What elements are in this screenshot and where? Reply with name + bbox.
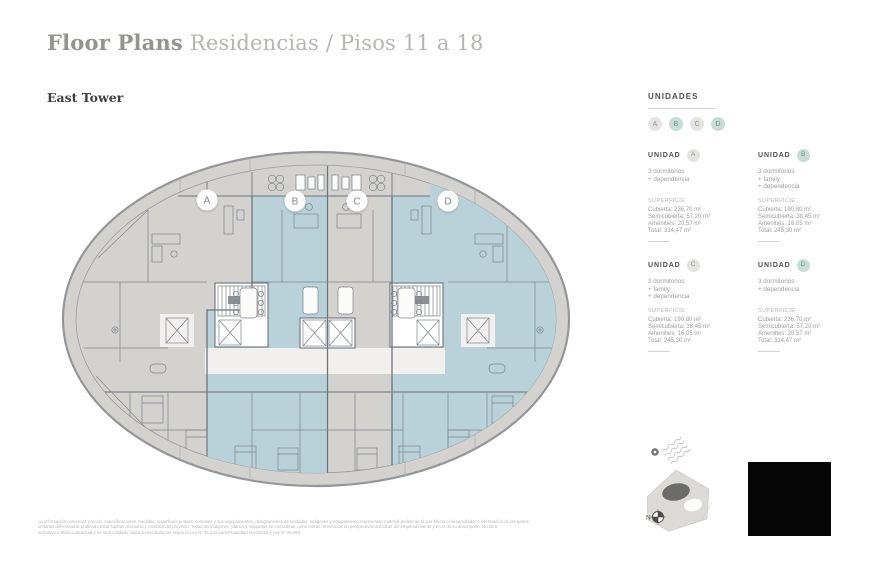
unit-badge-b: B bbox=[797, 149, 810, 162]
unit-card-header: UNIDAD C bbox=[648, 258, 752, 272]
unit-badge-a: A bbox=[687, 149, 700, 162]
legend-badge-b: B bbox=[669, 117, 683, 131]
water-waves-icon bbox=[661, 436, 690, 464]
legend-badge-row: A B C D bbox=[648, 117, 768, 131]
logo-placeholder bbox=[748, 462, 831, 536]
superficie-label: SUPERFICIE bbox=[648, 198, 752, 204]
unit-marker-d: D bbox=[438, 191, 459, 212]
unit-metrics: Cubierta: 190,80 m² Semicubierta: 38,45 … bbox=[758, 207, 862, 235]
dining-c bbox=[338, 287, 353, 314]
legend-divider bbox=[648, 108, 716, 109]
unit-metrics: Cubierta: 236,70 m² Semicubierta: 57,20 … bbox=[758, 317, 862, 345]
legend-badge-d: D bbox=[711, 117, 725, 131]
unit-features: 3 dormitorios + family + dependencia bbox=[648, 278, 752, 306]
svg-text:D: D bbox=[444, 197, 451, 208]
unit-card-header: UNIDAD A bbox=[648, 148, 752, 162]
site-locator: N bbox=[646, 436, 712, 531]
floor-plan-page: Floor Plans Residencias / Pisos 11 a 18 … bbox=[0, 0, 870, 582]
legend-badge-a: A bbox=[648, 117, 662, 131]
disclaimer-line: indicativo a título contractual y no ser… bbox=[38, 530, 563, 535]
legend-badge-c: C bbox=[690, 117, 704, 131]
svg-text:A: A bbox=[204, 196, 211, 207]
unit-metrics: Cubierta: 190,80 m² Semicubierta: 38,45 … bbox=[648, 317, 752, 345]
superficie-label: SUPERFICIE bbox=[648, 308, 752, 314]
unit-card-divider bbox=[648, 351, 670, 352]
unit-features: 3 dormitorios + dependencia bbox=[758, 278, 862, 306]
legend-heading: UNIDADES bbox=[648, 92, 768, 101]
unit-card-divider bbox=[648, 241, 670, 242]
locator-poi-dot-center bbox=[654, 451, 657, 454]
unit-card-c: UNIDAD C 3 dormitorios + family + depend… bbox=[648, 258, 752, 352]
unit-badge-d: D bbox=[797, 259, 810, 272]
superficie-label: SUPERFICIE bbox=[758, 308, 862, 314]
unit-card-header: UNIDAD D bbox=[758, 258, 862, 272]
unit-marker-c: C bbox=[347, 191, 368, 212]
unit-name-label: UNIDAD bbox=[648, 262, 681, 269]
unit-card-divider bbox=[758, 351, 780, 352]
unit-badge-c: C bbox=[687, 259, 700, 272]
unit-name-label: UNIDAD bbox=[758, 262, 791, 269]
central-corridor bbox=[205, 348, 445, 374]
unit-card-divider bbox=[758, 241, 780, 242]
unit-features: 3 dormitorios + dependencia bbox=[648, 168, 752, 196]
unit-card-a: UNIDAD A 3 dormitorios + dependencia SUP… bbox=[648, 148, 752, 242]
compass-north-label: N bbox=[646, 515, 651, 522]
unit-name-label: UNIDAD bbox=[758, 152, 791, 159]
unit-card-header: UNIDAD B bbox=[758, 148, 862, 162]
dining-b bbox=[303, 287, 318, 314]
legal-disclaimer: La información comercial, precios, espec… bbox=[38, 519, 563, 535]
legend-unidades: UNIDADES A B C D bbox=[648, 92, 768, 131]
unit-card-d: UNIDAD D 3 dormitorios + dependencia SUP… bbox=[758, 258, 862, 352]
unit-metrics: Cubierta: 236,70 m² Semicubierta: 57,20 … bbox=[648, 207, 752, 235]
svg-text:B: B bbox=[292, 197, 299, 208]
superficie-label: SUPERFICIE bbox=[758, 198, 862, 204]
unit-marker-a: A bbox=[197, 190, 218, 211]
unit-features: 3 dormitorios + family + dependencia bbox=[758, 168, 862, 196]
unit-name-label: UNIDAD bbox=[648, 152, 681, 159]
unit-card-b: UNIDAD B 3 dormitorios + family + depend… bbox=[758, 148, 862, 242]
unit-marker-b: B bbox=[285, 191, 306, 212]
svg-text:C: C bbox=[353, 197, 360, 208]
